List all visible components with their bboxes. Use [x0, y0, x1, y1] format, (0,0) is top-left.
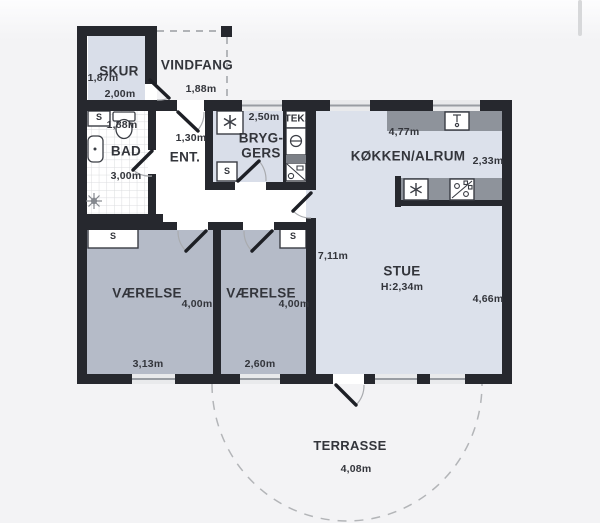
- koekken-dim-depth: 2,33m: [473, 156, 504, 168]
- ent-dim: 1,30m: [176, 133, 207, 145]
- vaerelse2-dim-width: 2,60m: [245, 359, 276, 371]
- bryggers-closet-label: S: [224, 167, 230, 177]
- bryggers-label-line1: BRYG-: [239, 132, 284, 147]
- vaerelse2-dim-area: 4,00m: [279, 299, 310, 311]
- tek-divider: [286, 155, 306, 163]
- floor-plan: SKUR 1,87m 2,00m VINDFANG 1,88m S 1,88m …: [0, 0, 600, 523]
- window-bottom-vaerelse2: [240, 374, 280, 384]
- skur-dim-width: 1,87m: [88, 73, 119, 85]
- window-bottom-vaerelse1: [132, 374, 175, 384]
- window-bottom-stue-1: [375, 374, 417, 384]
- stue-ceiling-height: H:2,34m: [381, 282, 423, 294]
- terrace-door: [336, 385, 356, 405]
- window-top-koekken: [330, 100, 370, 111]
- kitchen-island: [395, 176, 502, 207]
- bad-dim-width: 1,88m: [107, 120, 138, 132]
- ent-label: ENT.: [170, 151, 200, 166]
- terrasse-label: TERRASSE: [313, 439, 386, 453]
- bathroom-sink-icon: [88, 136, 103, 162]
- vaerelse1-closet-label: S: [110, 232, 116, 242]
- bad-label: BAD: [111, 145, 141, 160]
- koekken-dim-width: 4,77m: [389, 127, 420, 139]
- bad-closet-label: S: [96, 113, 102, 123]
- bad-dim-depth: 3,00m: [111, 171, 142, 183]
- window-top-bryggers: [242, 100, 282, 111]
- skur-dim-depth: 2,00m: [105, 89, 136, 101]
- tek-label: TEK.: [285, 114, 308, 125]
- vaerelse1-dim-area: 4,00m: [182, 299, 213, 311]
- porch-post: [221, 26, 232, 37]
- vaerelse1-label: VÆRELSE: [112, 287, 182, 302]
- stue-dim-depth: 4,66m: [473, 294, 504, 306]
- vindfang-dim: 1,88m: [186, 84, 217, 96]
- koekken-label: KØKKEN/ALRUM: [351, 150, 466, 165]
- bryggers-label-line2: GERS: [241, 147, 280, 162]
- vaerelse1-dim-width: 3,13m: [133, 359, 164, 371]
- vaerelse2-closet-label: S: [290, 232, 296, 242]
- bryggers-dim: 2,50m: [249, 112, 280, 124]
- stue-label: STUE: [383, 265, 420, 280]
- vindfang-label: VINDFANG: [161, 59, 233, 74]
- window-top-counter: [433, 100, 480, 111]
- stue-dim-length: 7,11m: [318, 251, 348, 263]
- window-bottom-stue-2: [430, 374, 465, 384]
- scrollbar-artifact: [578, 0, 582, 36]
- terrasse-dim: 4,08m: [341, 464, 372, 476]
